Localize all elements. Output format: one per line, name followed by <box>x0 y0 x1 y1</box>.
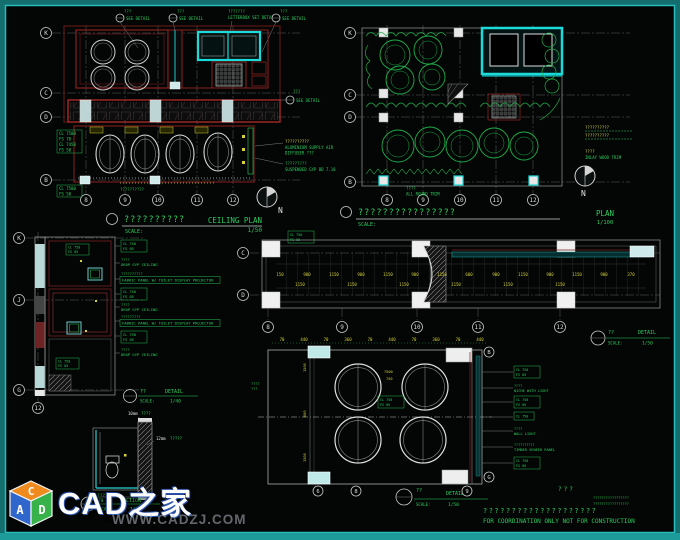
svg-text:440: 440 <box>476 337 484 342</box>
svg-text:SEE DETAIL: SEE DETAIL <box>296 98 321 103</box>
svg-text:FS 05: FS 05 <box>516 403 526 407</box>
svg-text:WALL LIGHT: WALL LIGHT <box>514 432 536 436</box>
svg-text:12: 12 <box>34 405 42 412</box>
svg-text:360: 360 <box>344 337 352 342</box>
svg-text:70: 70 <box>324 337 329 342</box>
floorplan-right-notes: ?????????? ?????????? ???? INLAY WOOD TR… <box>585 125 632 160</box>
scale-value: 1/50 <box>248 227 263 234</box>
scale-value: 1/100 <box>597 220 614 226</box>
svg-text:900: 900 <box>357 272 365 277</box>
circle-tag: 750 <box>386 377 393 381</box>
svg-text:370: 370 <box>627 272 635 277</box>
svg-text:FS 05: FS 05 <box>380 403 390 407</box>
footer-stamp: ??? <box>558 486 575 493</box>
svg-text:CL 750: CL 750 <box>58 360 70 364</box>
svg-text:K: K <box>44 30 48 37</box>
svg-text:SUSPENDED GYP BD 7.10: SUSPENDED GYP BD 7.10 <box>285 167 336 172</box>
svg-text:1150: 1150 <box>347 282 357 287</box>
svg-text:FS 50: FS 50 <box>59 148 72 153</box>
ceiling-plan: ??? SEE DETAIL ??? SEE DETAIL ??????? LE… <box>41 9 337 235</box>
svg-text:D: D <box>241 292 245 299</box>
table-detail-title: ?? DETAIL SCALE: 1/50 <box>396 488 488 508</box>
side-callout: ??? SEE DETAIL <box>280 89 321 104</box>
ceiling-corridor <box>68 100 280 122</box>
svg-text:C: C <box>241 250 245 257</box>
scale-value: 1/50 <box>642 341 653 347</box>
svg-text:D: D <box>348 114 352 121</box>
svg-text:FS 05: FS 05 <box>123 295 134 299</box>
svg-text:?????????: ????????? <box>285 161 307 166</box>
callout-label: SEE DETAIL <box>179 16 204 21</box>
svg-text:??????????: ?????????? <box>585 125 610 130</box>
svg-text:10mm: 10mm <box>128 411 138 416</box>
callout-tag: ??? <box>124 9 132 14</box>
footer-note-cn: ???????????????????? <box>483 507 597 515</box>
svg-text:G: G <box>17 387 21 394</box>
footer-tiny-2: ????????????????? <box>593 502 629 506</box>
svg-text:8: 8 <box>84 197 88 204</box>
svg-text:??????????: ?????????? <box>585 133 610 138</box>
inner-level-tag-b: CL 750 FS 05 <box>56 358 79 369</box>
svg-text:B: B <box>348 179 352 186</box>
svg-text:????: ???? <box>251 382 260 386</box>
detail-label: DETAIL <box>446 491 464 497</box>
svg-text:??????????: ?????????? <box>285 139 310 144</box>
svg-text:C: C <box>44 90 48 97</box>
svg-text:360: 360 <box>432 337 440 342</box>
ceiling-plan-title: ?????????? SCALE: CEILING PLAN 1/50 <box>107 214 263 236</box>
svg-text:K: K <box>348 30 352 37</box>
svg-text:INLAY WOOD TRIM: INLAY WOOD TRIM <box>585 155 622 160</box>
scale-label: SCALE: <box>416 502 430 507</box>
svg-text:1150: 1150 <box>329 272 339 277</box>
svg-text:CL 750: CL 750 <box>516 415 528 419</box>
svg-text:CL 750: CL 750 <box>516 398 528 402</box>
callout-tag: ??????? <box>228 9 245 14</box>
svg-text:70: 70 <box>456 337 461 342</box>
callout-label: SEE DETAIL <box>126 16 151 21</box>
svg-text:????: ???? <box>514 427 522 431</box>
floor-plan: K C D B 8 9 10 11 12 <box>341 25 633 228</box>
cad-drawing-canvas: ??? SEE DETAIL ??? SEE DETAIL ??????? LE… <box>0 0 680 540</box>
north-arrow: N <box>257 187 283 215</box>
svg-text:10: 10 <box>413 324 421 331</box>
callout-tag: ??? <box>177 9 185 14</box>
svg-text:9: 9 <box>123 197 127 204</box>
svg-text:???: ??? <box>251 387 258 391</box>
svg-text:??: ?? <box>140 389 146 395</box>
svg-text:FS 70: FS 70 <box>59 137 72 142</box>
scale-label: SCALE: <box>358 222 376 228</box>
level-tag-upper: CL 7500 FS 70 CL 7450 FS 50 <box>57 130 82 153</box>
svg-text:1150: 1150 <box>503 282 513 287</box>
footer-note-en: FOR COORDINATION ONLY NOT FOR CONSTRUCTI… <box>483 518 635 525</box>
svg-text:C: C <box>348 92 352 99</box>
svg-text:????: ???? <box>514 384 522 388</box>
lift-core <box>482 28 562 76</box>
svg-text:NICHE WITH LIGHT: NICHE WITH LIGHT <box>514 389 549 393</box>
svg-text:FABRIC PANEL W/ TOILET DISPLAY: FABRIC PANEL W/ TOILET DISPLAY PROJECTOR <box>122 278 214 283</box>
svg-text:FS 50: FS 50 <box>59 192 72 197</box>
corridor-detail-title: ?? DETAIL SCALE: 1/50 <box>591 330 670 347</box>
inner-level-tag-a: CL 750 FS 05 <box>66 244 89 255</box>
svg-text:12: 12 <box>229 197 237 204</box>
svg-text:TIMBER VENEER PANEL: TIMBER VENEER PANEL <box>514 448 555 452</box>
svg-text:900: 900 <box>411 272 419 277</box>
svg-text:900: 900 <box>303 272 311 277</box>
svg-text:1500: 1500 <box>303 453 307 462</box>
north-label: N <box>581 189 586 198</box>
grid-bubble-col: 8 9 10 11 12 <box>263 308 566 333</box>
title-cn: ?????????? <box>124 215 185 225</box>
grid-bubble-row: B G <box>484 347 494 482</box>
callout-see-detail-1: ??? SEE DETAIL <box>116 9 151 48</box>
svg-text:11: 11 <box>492 197 500 204</box>
toilet-annotations: CL 750 FS 05 ???? DROP GYP CEILING ?????… <box>120 240 220 357</box>
svg-text:C: C <box>28 485 35 498</box>
svg-text:6: 6 <box>316 489 319 495</box>
svg-text:FS 05: FS 05 <box>516 464 526 468</box>
svg-text:??????????: ?????????? <box>121 272 143 276</box>
svg-text:D: D <box>38 503 45 517</box>
toilet-detail-title: ?? DETAIL SCALE: 1/40 <box>124 389 199 405</box>
scale-label: SCALE: <box>125 229 143 235</box>
svg-text:ALUMINIUM SUPPLY AIR: ALUMINIUM SUPPLY AIR <box>285 145 334 150</box>
svg-text:70: 70 <box>368 337 373 342</box>
svg-text:600: 600 <box>303 411 307 418</box>
svg-text:CL 750: CL 750 <box>68 246 80 250</box>
svg-text:900: 900 <box>600 272 608 277</box>
svg-text:440: 440 <box>388 337 396 342</box>
grid-bubble-row: K C D B <box>41 28 52 186</box>
grid-bubble-row: C D <box>238 248 249 301</box>
north-arrow: N <box>575 166 595 198</box>
hatch-panel <box>488 94 520 120</box>
cad-cube-logo-icon: C A D <box>8 480 54 530</box>
svg-text:1500: 1500 <box>303 363 307 372</box>
cad-sheet: ??? SEE DETAIL ??? SEE DETAIL ??????? LE… <box>0 0 680 540</box>
svg-text:10: 10 <box>456 197 464 204</box>
letterbox-hatch-panel <box>212 62 246 88</box>
svg-text:CL 750: CL 750 <box>123 333 136 337</box>
svg-text:CL 750: CL 750 <box>123 242 136 246</box>
svg-text:DROP GYP CEILING: DROP GYP CEILING <box>121 307 158 312</box>
svg-text:B: B <box>44 177 48 184</box>
svg-text:11: 11 <box>193 197 201 204</box>
svg-text:???: ??? <box>293 89 301 94</box>
floor-plan-title: ???????????????? SCALE: PLAN 1/100 <box>341 207 615 229</box>
svg-text:CL 750: CL 750 <box>380 398 392 402</box>
svg-text:DROP GYP CEILING: DROP GYP CEILING <box>121 262 158 267</box>
circle-tag: 7500 <box>384 370 393 374</box>
table-annotations: CL 750 FS 05 ???? NICHE WITH LIGHT CL 75… <box>482 366 555 469</box>
leader-lines <box>115 246 120 353</box>
svg-text:DROP GYP CEILING: DROP GYP CEILING <box>121 352 158 357</box>
svg-text:CL 7500: CL 7500 <box>59 186 76 191</box>
svg-text:9: 9 <box>340 324 344 331</box>
svg-text:D: D <box>44 114 48 121</box>
svg-text:FS 05: FS 05 <box>516 373 526 377</box>
svg-text:600: 600 <box>465 272 473 277</box>
grid-bubble-row: K C D B <box>345 28 356 188</box>
svg-text:12: 12 <box>556 324 564 331</box>
svg-text:CL 7450: CL 7450 <box>59 142 76 147</box>
svg-text:1150: 1150 <box>572 272 582 277</box>
scale-label: SCALE: <box>608 341 622 346</box>
detail-label: DETAIL <box>638 330 656 336</box>
svg-text:DIFFUSER ???: DIFFUSER ??? <box>285 151 314 156</box>
table-dims-left: 1500 600 1500 <box>303 363 307 462</box>
title-bubble-icon <box>341 207 352 218</box>
svg-text:CL 750: CL 750 <box>516 459 528 463</box>
svg-text:G: G <box>487 475 490 481</box>
svg-text:1150: 1150 <box>399 282 409 287</box>
svg-text:70: 70 <box>412 337 417 342</box>
svg-text:440: 440 <box>300 337 308 342</box>
svg-text:10: 10 <box>154 197 162 204</box>
footer-notes: ??? ????????????????? ????????????????? … <box>483 486 635 525</box>
svg-text:?????????: ????????? <box>121 315 140 319</box>
svg-text:CL 750: CL 750 <box>290 233 302 237</box>
svg-text:FS 05: FS 05 <box>68 250 78 254</box>
detail-label: DETAIL <box>165 389 183 395</box>
svg-text:900: 900 <box>492 272 500 277</box>
svg-text:8: 8 <box>354 489 357 495</box>
callout-label: LETTERBOX SET DETAIL <box>228 15 277 20</box>
title-cn: ???????????????? <box>358 208 456 218</box>
svg-text:70: 70 <box>280 337 285 342</box>
svg-text:1150: 1150 <box>518 272 528 277</box>
corridor-detail: C D 150 900 1150 900 1150 900 1150 600 <box>238 231 671 347</box>
svg-text:????: ???? <box>585 149 595 154</box>
oval-ceiling-fixtures <box>90 127 232 173</box>
svg-text:8: 8 <box>266 324 270 331</box>
svg-text:11: 11 <box>474 324 482 331</box>
svg-text:9: 9 <box>421 197 425 204</box>
svg-text:8: 8 <box>385 197 389 204</box>
svg-text:FABRIC PANEL W/ TOILET DISPLAY: FABRIC PANEL W/ TOILET DISPLAY PROJECTOR <box>122 321 214 326</box>
level-tag-lower: CL 7500 FS 50 <box>57 185 82 197</box>
svg-text:CL 750: CL 750 <box>516 368 528 372</box>
svg-text:1150: 1150 <box>555 282 565 287</box>
svg-text:FS 05: FS 05 <box>123 247 134 251</box>
svg-text:????: ???? <box>406 186 416 191</box>
svg-text:A: A <box>16 503 24 517</box>
scale-value: 1/40 <box>170 399 181 405</box>
svg-text:??: ?? <box>416 488 422 494</box>
svg-text:CL 750: CL 750 <box>123 290 136 294</box>
svg-text:900: 900 <box>546 272 554 277</box>
svg-text:J: J <box>17 297 21 304</box>
table-dims-top: 70 440 70 360 70 440 70 360 70 440 <box>272 337 486 343</box>
svg-text:12mm: 12mm <box>156 436 166 441</box>
north-label: N <box>278 206 283 215</box>
svg-text:150: 150 <box>276 272 284 277</box>
grid-bubble-col: 8 9 10 11 12 <box>81 195 239 206</box>
svg-text:FS 05: FS 05 <box>58 364 68 368</box>
svg-text:FS 05: FS 05 <box>290 238 300 242</box>
title-bubble-icon <box>107 214 118 225</box>
svg-text:ALL ROUND TRIM: ALL ROUND TRIM <box>406 192 440 197</box>
svg-text:1150: 1150 <box>437 272 447 277</box>
center-level-tag: CL 750 FS 05 <box>378 396 404 408</box>
svg-text:????: ???? <box>141 411 151 416</box>
svg-text:12: 12 <box>529 197 537 204</box>
svg-text:1150: 1150 <box>383 272 393 277</box>
svg-text:??????????: ?????????? <box>514 443 534 447</box>
svg-text:CL 7500: CL 7500 <box>59 131 76 136</box>
toilet-detail: K J G 12 CL 750 FS 05 CL 750 <box>14 232 221 414</box>
svg-text:K: K <box>17 235 21 242</box>
title-en: PLAN <box>596 209 614 218</box>
watermark: C A D CAD之家 WWW.CADZJ.COM <box>6 476 306 538</box>
scale-label: SCALE: <box>140 399 154 404</box>
stair-wedge <box>448 84 468 104</box>
toilet-fixture <box>106 456 119 478</box>
ceiling-right-notes: ?????????? ALUMINIUM SUPPLY AIR DIFFUSER… <box>255 139 336 172</box>
svg-text:?????: ????? <box>170 436 183 441</box>
svg-text:FS 05: FS 05 <box>123 338 134 342</box>
under-note: ?????????? <box>120 187 145 192</box>
svg-text:1150: 1150 <box>451 282 461 287</box>
scale-value: 1/50 <box>448 502 459 508</box>
footer-tiny-1: ????????????????? <box>593 496 629 500</box>
title-en: CEILING PLAN <box>208 216 262 225</box>
svg-text:??: ?? <box>608 330 614 336</box>
svg-text:1150: 1150 <box>295 282 305 287</box>
svg-text:9: 9 <box>465 489 468 495</box>
lift-lobby <box>198 32 260 60</box>
callout-label: SEE DETAIL <box>282 16 307 21</box>
callout-tag: ??? <box>280 9 288 14</box>
ceiling-circle-fixtures <box>91 40 149 90</box>
corridor-level-tag: CL 750 FS 05 <box>288 231 314 243</box>
watermark-site-url: WWW.CADZJ.COM <box>112 512 246 527</box>
